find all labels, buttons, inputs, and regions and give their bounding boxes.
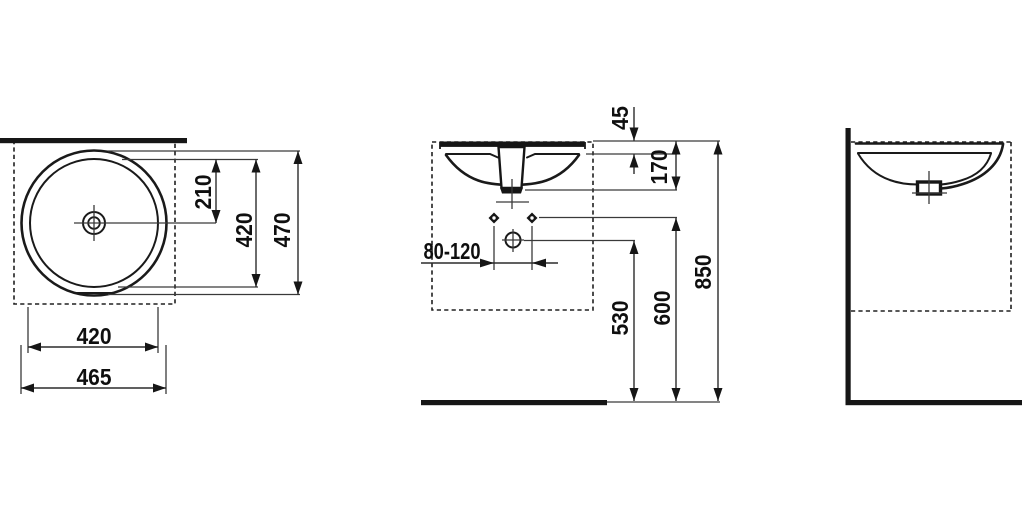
arrow-80-120-right	[532, 259, 546, 268]
front-view: 45 170 80-120 530 600 850	[421, 106, 720, 405]
basin-rim-bar	[440, 142, 585, 147]
dim-label-850: 850	[690, 255, 716, 290]
top-view-extension-lines	[21, 151, 300, 394]
rim-underside-left	[446, 154, 498, 158]
fixing-hole-right	[527, 213, 538, 224]
top-view: 210 420 470 420 465	[0, 138, 300, 394]
drawing-svg: 210 420 470 420 465	[0, 0, 1024, 512]
basin-back-inner-curve	[941, 154, 991, 185]
basin-back-outer-curve	[941, 145, 1003, 189]
dim-label-170: 170	[646, 150, 672, 185]
dimension-drawing: 210 420 470 420 465	[0, 0, 1024, 512]
arrow-80-120-left	[480, 259, 494, 268]
dim-label-45: 45	[607, 106, 633, 130]
rim-underside-right	[527, 154, 579, 158]
fixing-hole-left	[489, 213, 500, 224]
dim-label-420-horizontal: 420	[77, 323, 112, 349]
wall-line	[0, 138, 187, 143]
dim-label-80-120: 80-120	[424, 238, 481, 264]
dim-label-600: 600	[649, 291, 675, 326]
dim-label-210: 210	[190, 175, 216, 210]
dim-label-530: 530	[607, 301, 633, 336]
counter-unit-dashed-side	[851, 142, 1011, 311]
dim-label-420-vertical: 420	[231, 213, 257, 248]
dim-label-465: 465	[77, 364, 112, 390]
side-view	[846, 128, 1023, 405]
floor-line-front	[421, 400, 607, 405]
floor-line-side	[846, 400, 1023, 405]
wall-line-side	[846, 128, 851, 405]
dim-label-470: 470	[269, 213, 295, 248]
